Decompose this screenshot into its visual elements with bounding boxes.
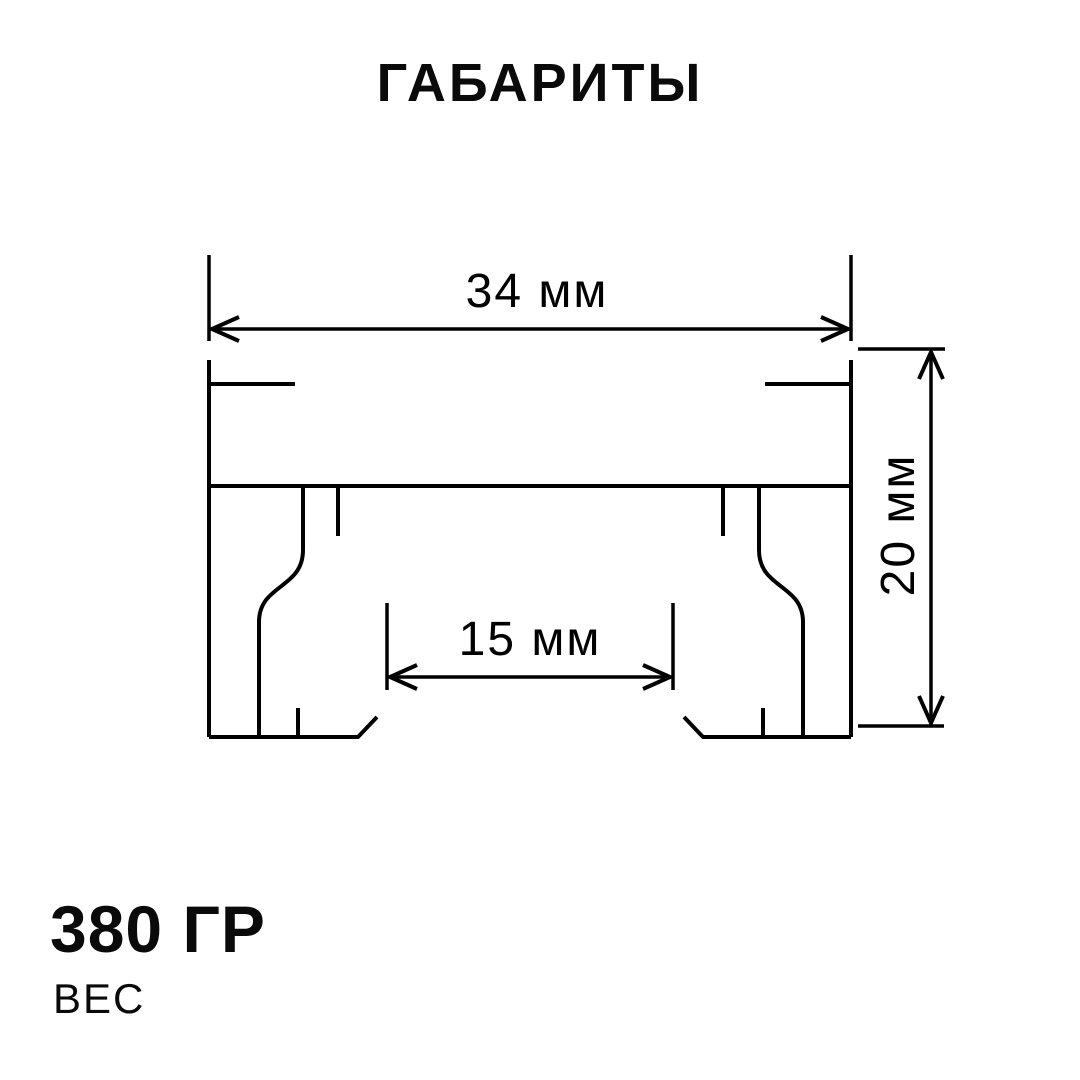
profile-right-leg-curve	[759, 486, 803, 737]
profile-bottom-left	[209, 717, 377, 737]
width-dimension-label: 34 мм	[466, 268, 609, 316]
weight-label: ВЕС	[53, 978, 266, 1020]
weight-value: 380 ГР	[50, 896, 266, 962]
profile-bottom-right	[684, 717, 851, 737]
weight-block: 380 ГР ВЕС	[50, 896, 266, 1020]
page: ГАБАРИТЫ	[0, 0, 1080, 1080]
profile-left-leg-curve	[259, 486, 303, 737]
inner-width-dimension-label: 15 мм	[459, 616, 602, 664]
height-dimension-label: 20 мм	[875, 454, 923, 597]
profile-outline	[209, 360, 851, 737]
